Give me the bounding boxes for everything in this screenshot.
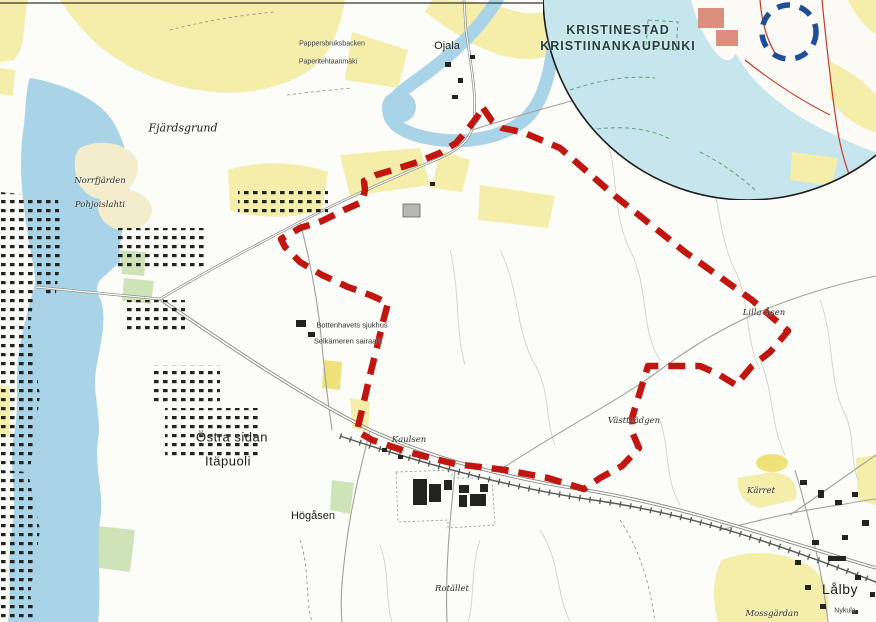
topographic-map bbox=[0, 0, 876, 622]
main-road bbox=[160, 299, 876, 568]
map-canvas: FjärdsgrundPappersbruksbackenPaperitehta… bbox=[0, 0, 876, 622]
large-gray-building bbox=[403, 204, 420, 217]
industrial-area bbox=[396, 470, 495, 528]
inset-map bbox=[543, 0, 876, 205]
